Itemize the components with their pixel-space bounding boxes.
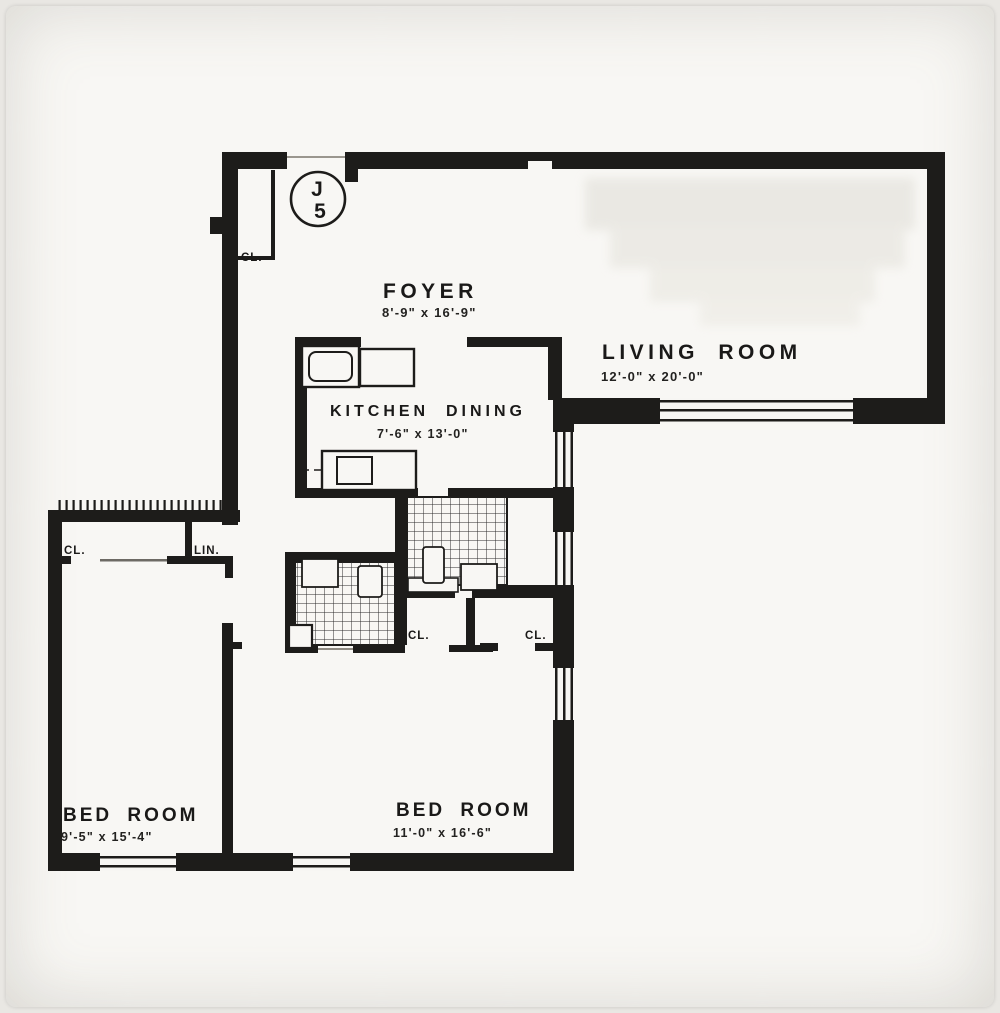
sink <box>461 564 497 590</box>
unit-number: 5 <box>314 200 326 223</box>
sink <box>302 559 338 587</box>
living-room-label: LIVING ROOM <box>602 341 802 364</box>
bedroom-2-east-window <box>555 668 573 720</box>
bedroom-1-dimensions: 9'-5" x 15'-4" <box>61 830 153 844</box>
bedroom-1-label: BED ROOM <box>63 805 199 826</box>
living-room-window <box>660 398 853 424</box>
scan-artifact-smudge <box>585 178 915 326</box>
living-room-dimensions: 12'-0" x 20'-0" <box>601 369 704 384</box>
stove <box>337 457 372 484</box>
bedroom-1-window <box>100 853 176 871</box>
unit-letter: J <box>311 178 323 201</box>
bedroom-2-closet-left-label: CL. <box>408 630 430 642</box>
party-wall-hatching <box>56 500 236 510</box>
bedroom-2-dimensions: 11'-0" x 16'-6" <box>393 826 492 840</box>
bedroom-1-closet-label: CL. <box>64 545 86 557</box>
bedroom-2-label: BED ROOM <box>396 800 532 821</box>
kitchen-dining-dimensions: 7'-6" x 13'-0" <box>377 427 469 441</box>
kitchen-sink <box>309 352 352 381</box>
wall-pilaster <box>210 217 222 234</box>
unit-badge: J 5 <box>291 172 345 226</box>
foyer-label: FOYER <box>383 280 478 303</box>
refrigerator <box>360 349 414 386</box>
dining-label: DINING <box>446 403 526 420</box>
foyer-dimensions: 8'-9" x 16'-9" <box>382 305 477 320</box>
bedroom-2-south-window <box>293 853 350 871</box>
foyer-closet-label: CL. <box>241 252 263 264</box>
bedroom-2-closet-right-label: CL. <box>525 630 547 642</box>
dining-window <box>555 432 573 487</box>
linen-closet-label: LIN. <box>194 545 220 557</box>
kitchen-label: KITCHEN <box>330 403 429 420</box>
floor-plan-drawing: J 5 FOYER 8'-9" x 16'-9" LIVING ROOM 12'… <box>0 0 1000 1013</box>
door-recess <box>289 625 312 648</box>
bathroom-window <box>555 532 573 585</box>
toilet <box>358 566 382 597</box>
toilet <box>423 547 444 583</box>
